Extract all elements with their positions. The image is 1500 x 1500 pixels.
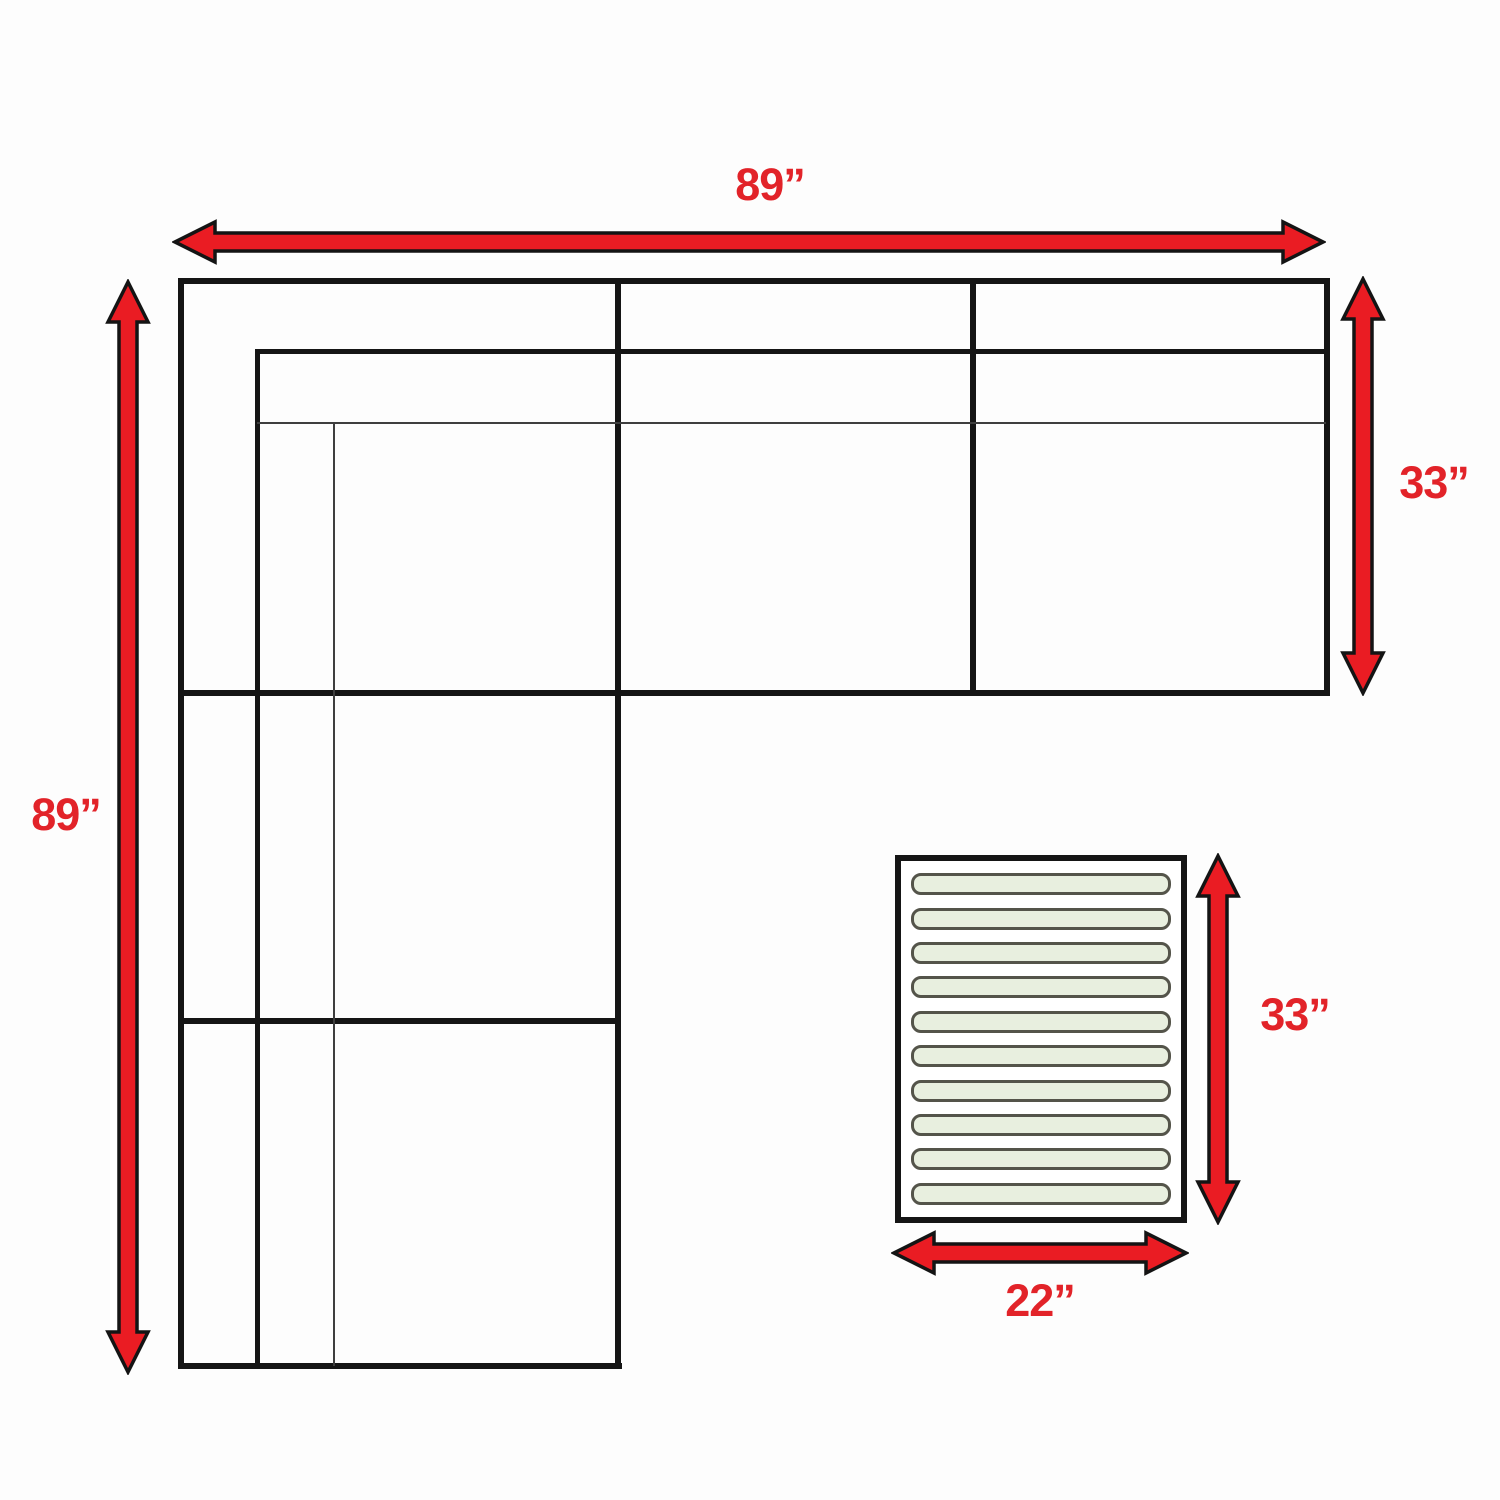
sofa-left-edge bbox=[178, 278, 184, 1369]
sofa-seat-divider bbox=[970, 278, 976, 696]
sofa-corner-divider bbox=[615, 278, 621, 1369]
backrest-line-vertical bbox=[255, 349, 260, 1369]
ottoman-slat bbox=[911, 1183, 1171, 1205]
sofa-bottom-edge bbox=[178, 1363, 622, 1369]
sofa-right-edge bbox=[1324, 278, 1330, 696]
ottoman-slat bbox=[911, 976, 1171, 998]
seat-front-line-vertical bbox=[333, 422, 335, 1366]
sofa-top-edge bbox=[178, 278, 1330, 284]
sofa-width-arrow bbox=[172, 219, 1326, 265]
ottoman-slat bbox=[911, 942, 1171, 964]
ottoman bbox=[895, 855, 1187, 1223]
ottoman-depth-label: 33” bbox=[1237, 992, 1353, 1037]
ottoman-slats bbox=[901, 861, 1181, 1217]
sofa-left-band-divider bbox=[178, 1018, 621, 1024]
ottoman-width-arrow bbox=[891, 1230, 1189, 1276]
ottoman-slat bbox=[911, 1148, 1171, 1170]
sofa-depth-label: 89” bbox=[10, 792, 122, 837]
ottoman-depth-arrow bbox=[1195, 853, 1241, 1225]
chaise-depth-label: 33” bbox=[1376, 460, 1492, 505]
ottoman-slat bbox=[911, 1114, 1171, 1136]
ottoman-slat bbox=[911, 908, 1171, 930]
ottoman-slat bbox=[911, 1080, 1171, 1102]
diagram-canvas: 89” 89” 33” 33” 22” bbox=[0, 0, 1500, 1500]
ottoman-slat bbox=[911, 1011, 1171, 1033]
ottoman-width-label: 22” bbox=[982, 1278, 1098, 1323]
ottoman-slat bbox=[911, 873, 1171, 895]
backrest-line-horizontal bbox=[255, 349, 1330, 354]
seat-front-line-horizontal bbox=[257, 422, 1326, 424]
sofa-chaise-bottom-edge bbox=[178, 690, 1330, 696]
sofa-width-label: 89” bbox=[700, 162, 840, 207]
ottoman-slat bbox=[911, 1045, 1171, 1067]
